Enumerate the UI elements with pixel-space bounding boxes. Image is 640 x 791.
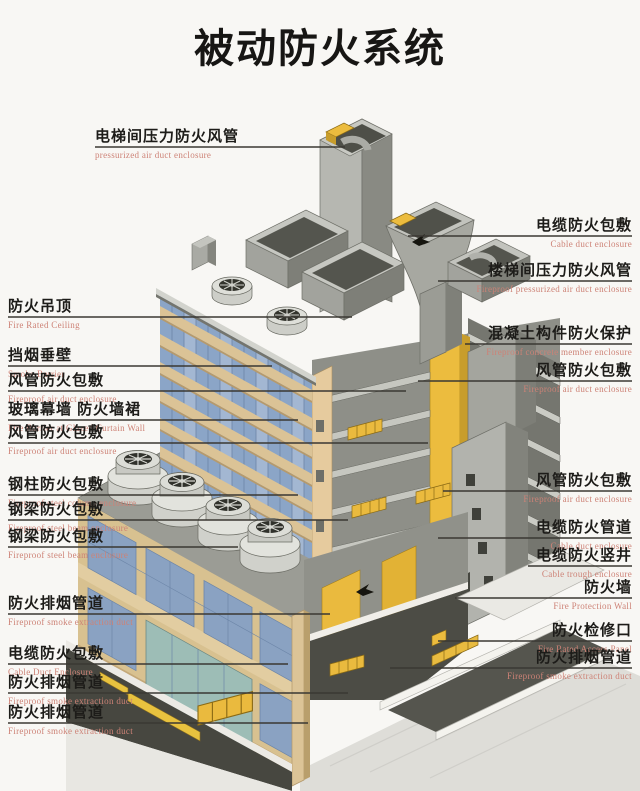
callout-air-duct-enclosure-2: 风管防火包敷 Fireproof air duct enclosure [8,423,117,457]
callout-smoke-duct-3: 防火排烟管道 Fireproof smoke extraction duct [8,703,133,737]
roof-fan-icon [212,277,252,305]
callout-elevator-pressurized-duct: 电梯间压力防火风管 pressurized air duct enclosure [95,127,239,161]
callout-concrete-member-protection: 混凝土构件防火保护 Fireproof concrete member encl… [486,324,632,358]
callout-steel-beam-enclosure-2: 钢梁防火包敷 Fireproof steel beam enclosure [8,527,128,561]
callout-fire-rated-ceiling: 防火吊顶 Fire Rated Ceiling [8,297,80,331]
callout-stair-pressurized-duct: 楼梯间压力防火风管 Fireproof pressurized air duct… [477,261,632,295]
corner-pillar [292,610,310,786]
callout-cable-shaft: 电缆防火竖井 Cable trough enclosure [536,546,632,580]
callout-smoke-duct-2: 防火排烟管道 Fireproof smoke extraction duct [8,673,133,707]
callout-fire-wall: 防火墙 Fire Protection Wall [553,578,632,612]
roof-duct-box [192,236,216,270]
roof-fan-icon [267,307,307,335]
callout-smoke-duct-1: 防火排烟管道 Fireproof smoke extraction duct [8,594,133,628]
cut-edge-band [312,366,332,566]
callout-air-duct-enclosure-right-1: 风管防火包敷 Fireproof air duct enclosure [523,361,632,395]
diagram-canvas: 被动防火系统 [0,0,640,791]
callout-air-duct-enclosure-right-2: 风管防火包敷 Fireproof air duct enclosure [523,471,632,505]
callout-smoke-duct-right: 防火排烟管道 Fireproof smoke extraction duct [507,648,632,682]
callout-cable-duct-enclosure-right: 电缆防火包敷 Cable duct enclosure [536,216,632,250]
